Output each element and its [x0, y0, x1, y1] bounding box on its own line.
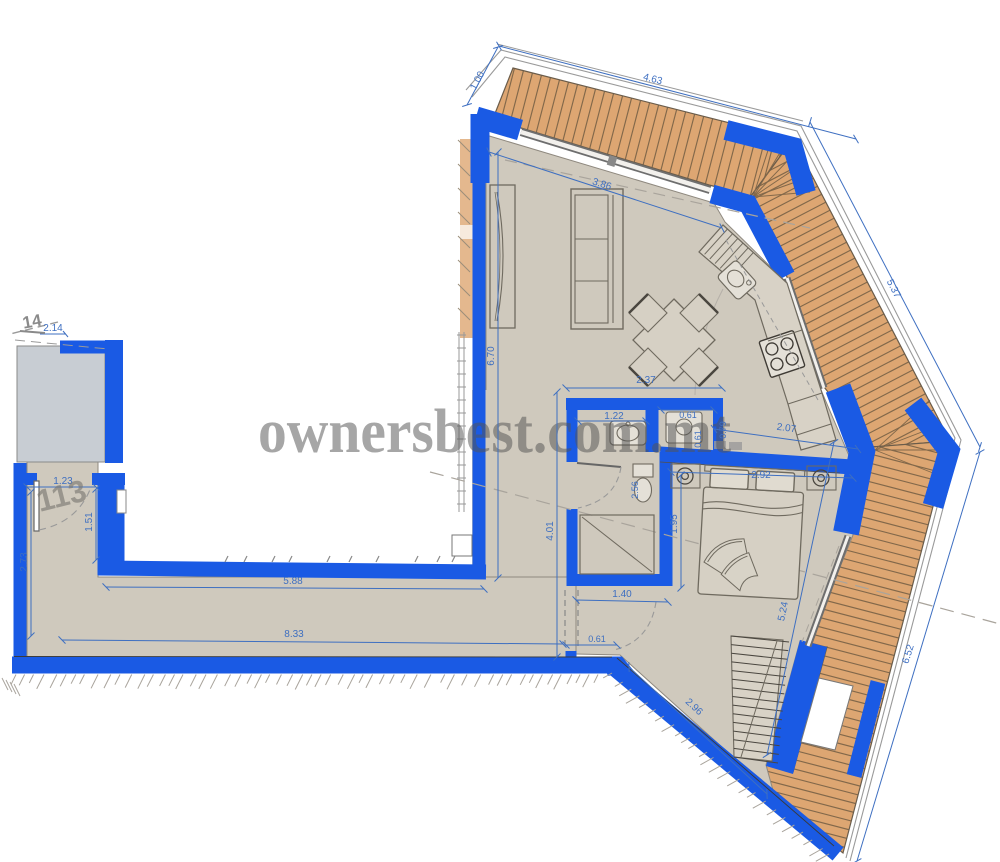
- svg-text:4.63: 4.63: [642, 72, 664, 88]
- svg-text:2.73: 2.73: [19, 552, 30, 572]
- svg-text:8.33: 8.33: [284, 629, 304, 640]
- svg-text:5.88: 5.88: [283, 576, 303, 587]
- svg-text:1.95: 1.95: [669, 514, 680, 534]
- svg-text:0.61: 0.61: [693, 430, 703, 448]
- svg-text:0.61: 0.61: [588, 634, 606, 644]
- svg-text:1.22: 1.22: [604, 411, 624, 422]
- svg-text:ownersbest.com.mt: ownersbest.com.mt: [258, 398, 731, 466]
- svg-text:2.14: 2.14: [43, 323, 63, 334]
- svg-text:5.37: 5.37: [884, 278, 903, 301]
- svg-text:1.51: 1.51: [84, 512, 95, 532]
- svg-text:0.79: 0.79: [718, 421, 728, 439]
- svg-text:2.37: 2.37: [636, 375, 656, 386]
- svg-text:4.01: 4.01: [545, 521, 556, 541]
- svg-text:14: 14: [21, 310, 43, 332]
- svg-text:2.56: 2.56: [630, 481, 640, 499]
- svg-text:1.40: 1.40: [612, 589, 632, 600]
- svg-text:6.70: 6.70: [486, 346, 497, 366]
- svg-text:0.61: 0.61: [679, 410, 697, 420]
- svg-text:2.92: 2.92: [751, 470, 771, 481]
- svg-text:6.52: 6.52: [901, 643, 917, 665]
